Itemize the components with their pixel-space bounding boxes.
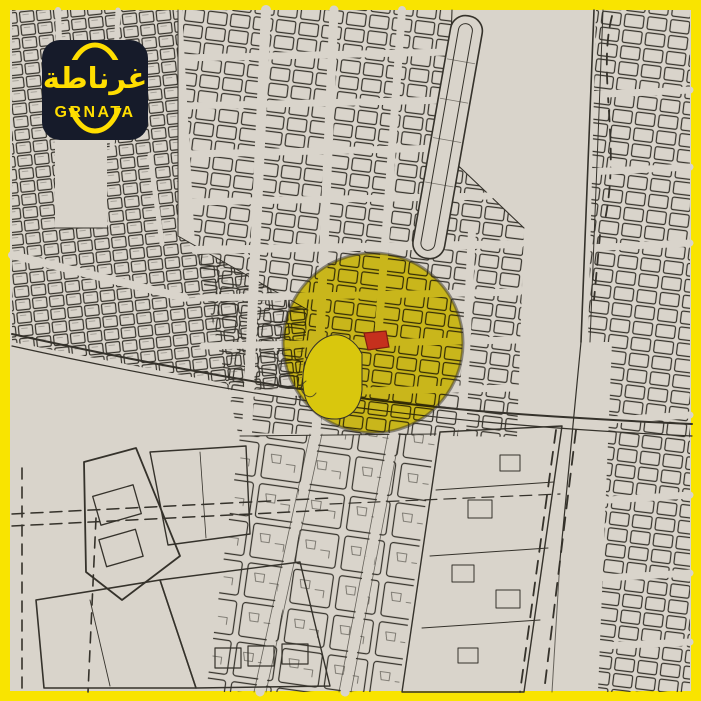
brand-logo: غرناطة GRNATA bbox=[42, 40, 148, 140]
map-post: غرناطة GRNATA bbox=[0, 0, 701, 701]
map-image: غرناطة GRNATA bbox=[0, 0, 701, 701]
logo-arabic-text: غرناطة bbox=[43, 61, 148, 95]
logo-latin-text: GRNATA bbox=[54, 104, 135, 121]
property-marker bbox=[364, 331, 389, 350]
highlight-area bbox=[283, 253, 463, 433]
